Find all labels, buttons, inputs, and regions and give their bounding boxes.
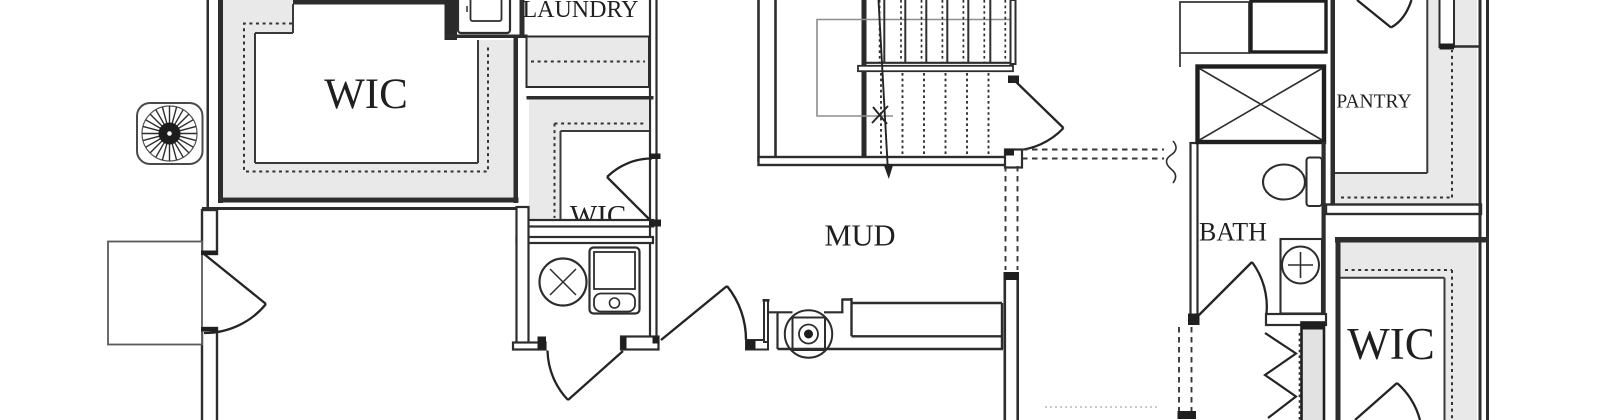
svg-text:PANTRY: PANTRY <box>1336 92 1411 113</box>
svg-text:MUD: MUD <box>824 219 895 253</box>
svg-text:WIC: WIC <box>1347 319 1434 369</box>
svg-text:LAUNDRY: LAUNDRY <box>522 0 638 23</box>
svg-text:BATH: BATH <box>1199 218 1267 247</box>
svg-text:WIC: WIC <box>324 71 408 118</box>
